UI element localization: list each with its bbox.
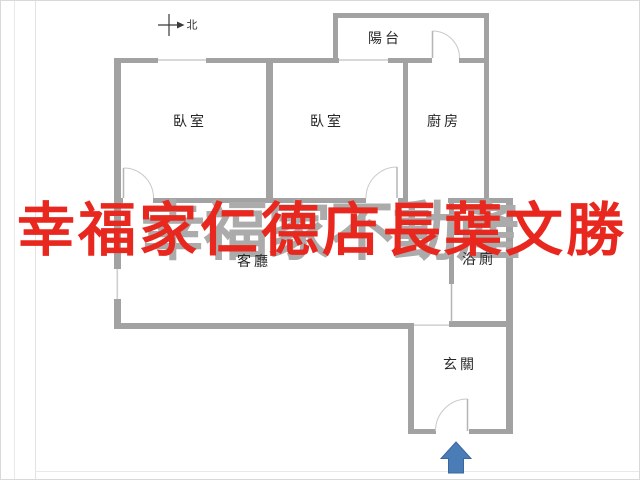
- wall-top-b: [206, 58, 339, 63]
- wall-foyer-bottom-b: [469, 429, 513, 434]
- entrance-arrow-icon: [441, 442, 471, 473]
- wall-foyer-left: [408, 323, 414, 434]
- window-left: [117, 269, 119, 299]
- wall-living-bottom: [114, 323, 414, 329]
- window-top-1: [158, 59, 206, 61]
- wall-foyer-bottom-a: [408, 429, 436, 434]
- window-top-2: [339, 59, 388, 61]
- door-arc-bedroom-1: [124, 168, 154, 198]
- room-label-kitchen: 廚房: [427, 115, 461, 129]
- floorplan-canvas: 幸福家不動產 臥室 臥室 廚房 陽台 客廳 浴廁 玄關 北 幸福家仁德店長葉文勝: [0, 0, 640, 480]
- wall-kitchen-left: [403, 63, 408, 203]
- wall-bathroom-bottom: [449, 321, 513, 327]
- wall-balcony-left: [333, 13, 338, 58]
- north-label: 北: [187, 20, 198, 31]
- north-arrow-icon: [158, 14, 185, 36]
- windows: [117, 59, 450, 326]
- opening-foyer-top: [414, 324, 449, 326]
- door-arc-balcony: [433, 31, 460, 58]
- wall-right-upper: [484, 13, 489, 198]
- wall-balcony-top: [333, 13, 489, 18]
- room-label-foyer: 玄關: [443, 358, 477, 372]
- door-arc-foyer: [436, 399, 468, 431]
- red-watermark: 幸福家仁德店長葉文勝: [17, 200, 627, 261]
- door-arc-bedroom-2: [366, 167, 397, 198]
- wall-top-c: [388, 58, 432, 63]
- room-label-bedroom-2: 臥室: [310, 115, 344, 129]
- wall-bedroom-divider: [266, 63, 273, 203]
- room-label-bedroom-1: 臥室: [173, 115, 207, 129]
- room-label-balcony: 陽台: [368, 32, 402, 46]
